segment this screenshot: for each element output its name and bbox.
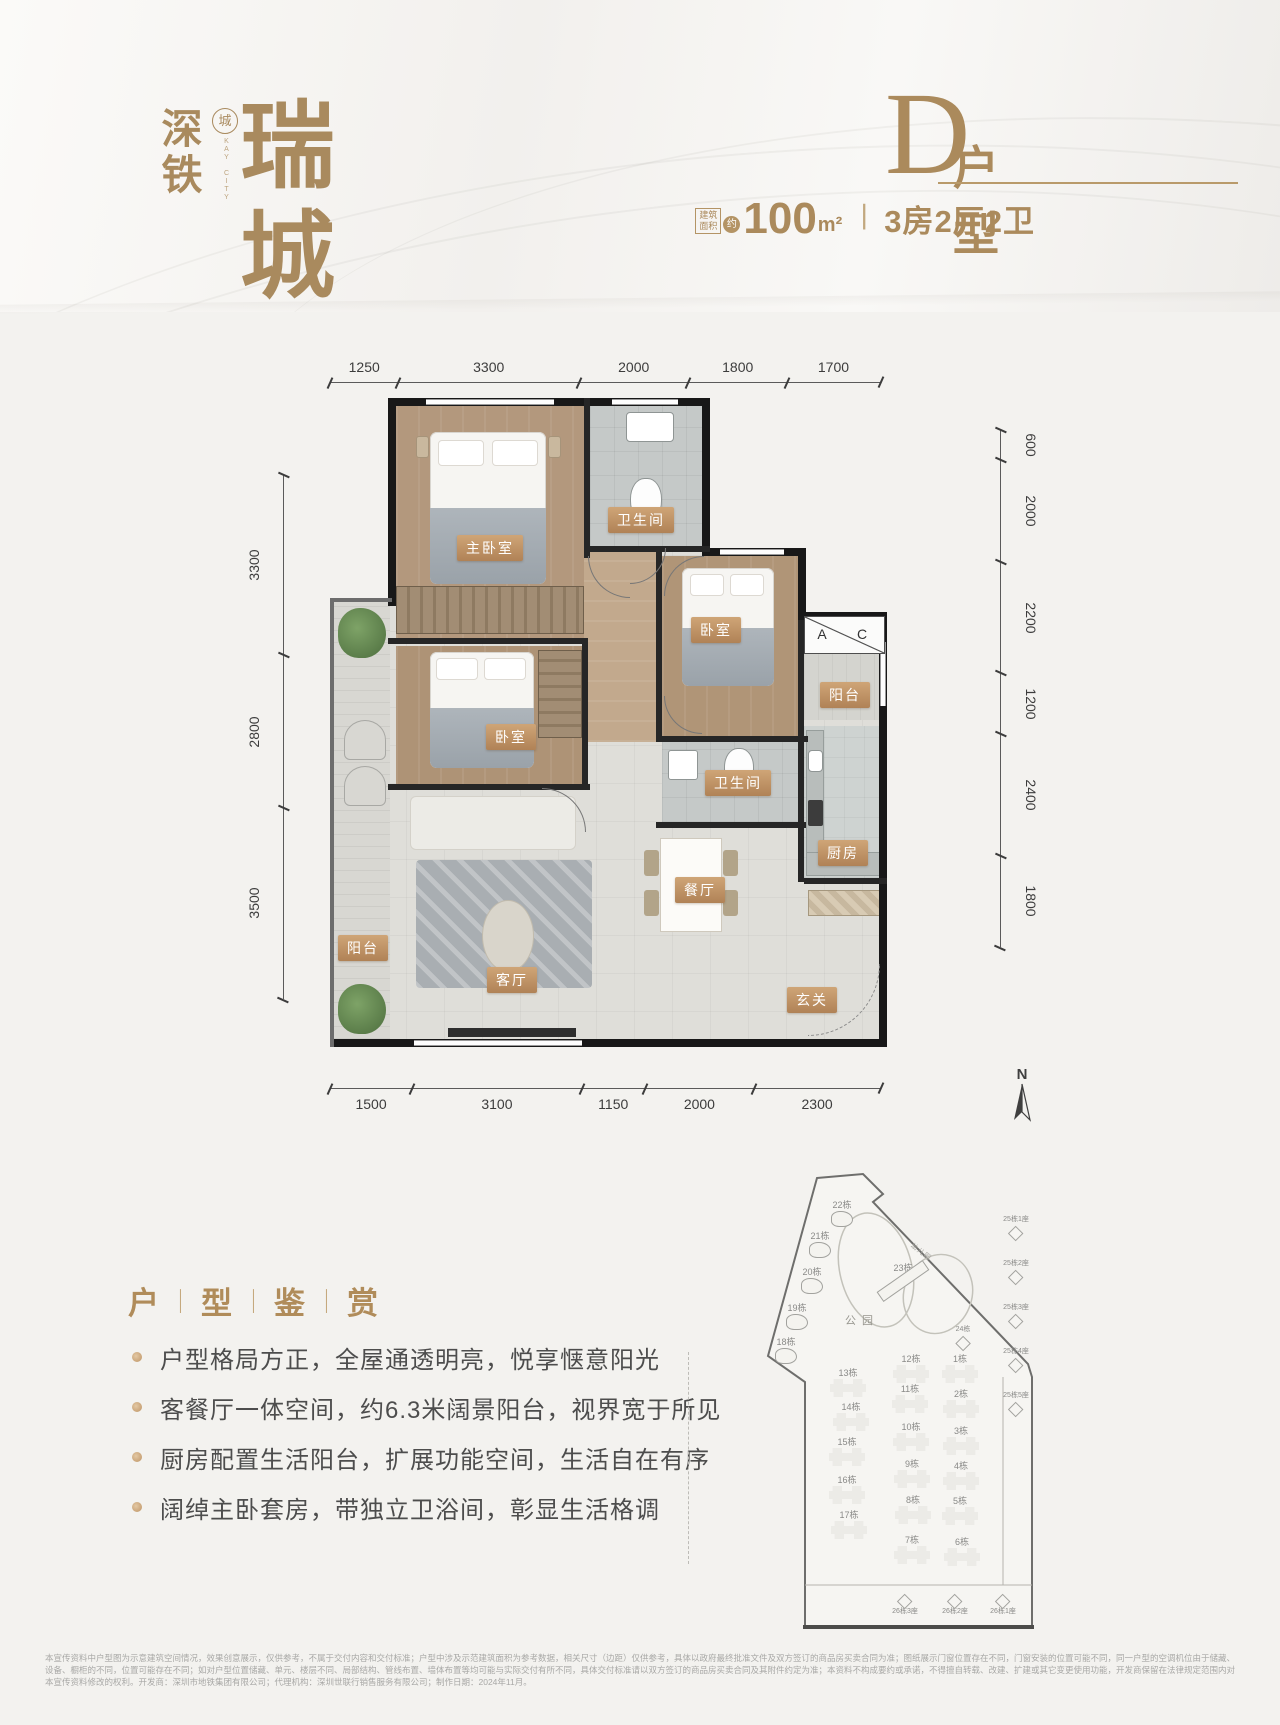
sitemap-tower: 15栋: [829, 1437, 865, 1466]
sitemap-tower: 8栋: [895, 1495, 931, 1524]
pillow: [730, 574, 764, 596]
sitemap-tower: 26栋2座: [942, 1593, 968, 1617]
sitemap-tower: 21栋: [809, 1231, 831, 1258]
park-label: 公园: [845, 1312, 879, 1328]
tower-label: 25栋3座: [1003, 1303, 1029, 1313]
sitemap-tower: 5栋: [942, 1496, 978, 1525]
window-bedroomR: [720, 549, 784, 555]
heading-separator: 丨: [320, 1282, 334, 1319]
pillow: [484, 658, 526, 680]
sitemap-tower: 11栋: [892, 1384, 928, 1413]
room-label: 餐厅: [675, 877, 725, 903]
plant: [338, 608, 386, 658]
sitemap-tower: 14栋: [833, 1402, 869, 1431]
dimension-row-top: 12503300200018001700: [330, 382, 880, 383]
tower-label: 10栋: [901, 1422, 920, 1432]
sitemap-tower: 18栋: [775, 1337, 797, 1364]
dimension-value: 1800: [688, 359, 787, 375]
area-value: 100: [743, 200, 816, 238]
logo-latin-subtext: KAY CITY: [218, 138, 230, 202]
sitemap-tower: 2栋: [943, 1389, 979, 1418]
wall-kitchen-bottom: [804, 878, 887, 884]
chair: [723, 850, 738, 876]
sitemap-tower: 26栋3座: [892, 1593, 918, 1617]
sitemap-tower: 7栋: [894, 1535, 930, 1564]
tower-footprint-icon: [894, 1470, 930, 1488]
balcony-rail-top: [330, 598, 392, 602]
tower-footprint-icon: [943, 1437, 979, 1455]
bullet-text: 阔绰主卧套房，带独立卫浴间，彰显生活格调: [160, 1490, 660, 1525]
dimension-value: 1200: [1023, 688, 1039, 719]
unit-spec-row: 建筑 面积 约 100 m² 丨 3房2厅2卫: [695, 196, 1035, 238]
nightstand: [548, 436, 561, 458]
lounge-chair: [344, 766, 386, 806]
sitemap-tower: 9栋: [894, 1459, 930, 1488]
pillow: [492, 440, 538, 466]
room-label: 主卧室: [457, 535, 523, 561]
room-label: 玄关: [787, 987, 837, 1013]
sitemap-tower: 20栋: [801, 1267, 823, 1294]
tower-footprint-icon: [943, 1400, 979, 1418]
heading-separator: 丨: [174, 1282, 188, 1319]
dimension-value: 3300: [246, 549, 262, 580]
plant: [338, 984, 386, 1034]
sitemap-tower: 16栋: [829, 1475, 865, 1504]
chair: [644, 890, 659, 916]
wall-bedroom2-right: [582, 644, 588, 790]
heading-char: 户: [128, 1278, 161, 1323]
tower-label: 21栋: [810, 1231, 829, 1241]
tower-footprint-icon: [831, 1521, 867, 1539]
ac-marker-letter: A: [817, 626, 826, 642]
window-bath1: [612, 399, 678, 405]
ac-marker-letter: C: [857, 626, 867, 642]
balcony-floor: [334, 602, 390, 1039]
dimension-value: 1700: [787, 359, 880, 375]
tower-footprint-icon: [1008, 1314, 1024, 1330]
tower-footprint-icon: [829, 1486, 865, 1504]
north-arrow: N: [1012, 1066, 1032, 1128]
tower-label: 19栋: [787, 1303, 806, 1313]
dimension-value: 2800: [246, 716, 262, 747]
area-unit: m²: [818, 214, 842, 237]
wall-master-bottom: [388, 638, 588, 644]
tv-cabinet: [448, 1028, 576, 1037]
tower-label: 18栋: [776, 1337, 795, 1347]
area-label-box: 建筑 面积: [695, 208, 721, 234]
tower-footprint-icon: [830, 1379, 866, 1397]
wall-bedroomR-left: [656, 550, 662, 742]
silk-curve: [180, 68, 1280, 312]
sitemap-tower: 25栋3座: [1003, 1303, 1029, 1327]
bullet-dot-icon: [132, 1502, 142, 1512]
tower-label: 8栋: [906, 1495, 920, 1505]
dimension-value: 2200: [1023, 602, 1039, 633]
dimension-value: 2400: [1023, 779, 1039, 810]
feature-bullet: 户型格局方正，全屋通透明亮，悦享惬意阳光: [132, 1332, 721, 1382]
tower-footprint-icon: [801, 1278, 823, 1294]
dimension-value: 3300: [398, 359, 579, 375]
room-label: 阳台: [820, 682, 870, 708]
north-arrow-icon: [1012, 1083, 1032, 1123]
tower-label: 3栋: [954, 1426, 968, 1436]
tower-label: 17栋: [839, 1510, 858, 1520]
window-living: [414, 1040, 582, 1046]
dimension-column-right: 60020002200120024001800: [1000, 430, 1001, 947]
tower-footprint-icon: [942, 1507, 978, 1525]
dimension-value: 600: [1023, 434, 1039, 457]
tower-label: 25栋5座: [1003, 1391, 1029, 1401]
dimension-row-bottom: 15003100115020002300: [330, 1088, 880, 1089]
feature-bullet: 阔绰主卧套房，带独立卫浴间，彰显生活格调: [132, 1482, 721, 1532]
nightstand: [416, 436, 429, 458]
feature-bullet: 厨房配置生活阳台，扩展功能空间，生活自在有序: [132, 1432, 721, 1482]
tower-footprint-icon: [894, 1546, 930, 1564]
wall-right-step2: [798, 548, 806, 620]
feature-bullet: 客餐厅一体空间，约6.3米阔景阳台，视界宽于所见: [132, 1382, 721, 1432]
tower-footprint-icon: [895, 1506, 931, 1524]
bullet-text: 户型格局方正，全屋通透明亮，悦享惬意阳光: [160, 1340, 660, 1375]
tower-label: 25栋2座: [1003, 1259, 1029, 1269]
dimension-value: 1500: [330, 1096, 412, 1112]
pillow: [436, 658, 478, 680]
floor-plan: 主卧室卫生间卧室卧室卫生间阳台厨房餐厅客厅阳台玄关AC: [330, 398, 890, 1050]
dimension-value: 2000: [1023, 496, 1039, 527]
room-label: 卧室: [691, 617, 741, 643]
approx-circle-icon: 约: [723, 216, 740, 233]
tower-label: 25栋1座: [1003, 1215, 1029, 1225]
bullet-dot-icon: [132, 1402, 142, 1412]
sitemap-tower: 25栋1座: [1003, 1215, 1029, 1239]
bullet-text: 客餐厅一体空间，约6.3米阔景阳台，视界宽于所见: [160, 1390, 721, 1425]
tower-label: 22栋: [832, 1200, 851, 1210]
tower-footprint-icon: [942, 1365, 978, 1383]
tower-footprint-icon: [1008, 1270, 1024, 1286]
sitemap-tower: 12栋: [893, 1354, 929, 1383]
lounge-chair: [344, 720, 386, 760]
chair: [644, 850, 659, 876]
sitemap-tower: 6栋: [944, 1537, 980, 1566]
tower-label: 2栋: [954, 1389, 968, 1399]
dimension-value: 1150: [582, 1096, 645, 1112]
dimension-value: 1800: [1023, 886, 1039, 917]
tower-label: 9栋: [905, 1459, 919, 1469]
room-label: 卫生间: [608, 507, 674, 533]
bath1-sink: [626, 412, 674, 442]
features-bullet-list: 户型格局方正，全屋通透明亮，悦享惬意阳光客餐厅一体空间，约6.3米阔景阳台，视界…: [132, 1332, 721, 1532]
wall-right-step1: [702, 398, 710, 556]
tower-label: 6栋: [955, 1537, 969, 1547]
tower-label: 16栋: [837, 1475, 856, 1485]
tower-label: 1栋: [953, 1354, 967, 1364]
sitemap-tower: 25栋2座: [1003, 1259, 1029, 1283]
room-count-spec: 3房2厅2卫: [884, 205, 1035, 238]
tower-label: 11栋: [901, 1384, 919, 1394]
bullet-dot-icon: [132, 1352, 142, 1362]
sitemap-tower: 10栋: [893, 1422, 929, 1451]
wall-kitchen-left: [798, 620, 804, 882]
bullet-dot-icon: [132, 1452, 142, 1462]
wall-left: [388, 398, 396, 606]
tower-footprint-icon: [809, 1242, 831, 1258]
sitemap-tower: 13栋: [830, 1368, 866, 1397]
logo-stacked-chars: 深 铁: [160, 106, 204, 198]
site-map: 22栋21栋20栋19栋18栋23栋24栋13栋14栋15栋16栋17栋12栋1…: [760, 1172, 1052, 1642]
heading-separator: 丨: [247, 1282, 261, 1319]
tower-footprint-icon: [893, 1433, 929, 1451]
dimension-value: 2000: [645, 1096, 754, 1112]
sitemap-tower: 19栋: [786, 1303, 808, 1330]
tower-footprint-icon: [892, 1395, 928, 1413]
tower-footprint-icon: [833, 1413, 869, 1431]
brochure-page: 深 铁 城 KAY CITY 瑞城 D 户型 建筑 面积 约 100 m² 丨 …: [0, 0, 1280, 1725]
north-label: N: [1012, 1066, 1032, 1083]
tower-footprint-icon: [893, 1365, 929, 1383]
sitemap-tower: 25栋5座: [1003, 1391, 1029, 1415]
tower-label: 15栋: [837, 1437, 856, 1447]
dimension-column-left: 330028003500: [283, 475, 284, 999]
heading-char: 赏: [347, 1278, 380, 1323]
tower-label: 20栋: [802, 1267, 821, 1277]
tower-footprint-icon: [1008, 1402, 1024, 1418]
tower-footprint-icon: [943, 1472, 979, 1490]
bullet-text: 厨房配置生活阳台，扩展功能空间，生活自在有序: [160, 1440, 710, 1475]
stove: [808, 800, 823, 826]
dimension-value: 3500: [246, 888, 262, 919]
balcony-rail-left: [330, 598, 334, 1047]
heading-char: 型: [201, 1278, 234, 1323]
kitchen-sink: [808, 750, 823, 772]
wall-bedroom2-bottom: [388, 784, 590, 790]
room-label: 卫生间: [705, 770, 771, 796]
dimension-value: 2300: [754, 1096, 880, 1112]
tower-label: 5栋: [953, 1496, 967, 1506]
title-underline: [938, 182, 1238, 184]
legal-disclaimer-text: 本宣传资料中户型图为示意建筑空间情况，效果创意展示，仅供参考，不属于交付内容和交…: [45, 1652, 1235, 1688]
tower-footprint-icon: [955, 1336, 971, 1352]
foyer-cabinet: [808, 890, 880, 916]
washer: [668, 750, 698, 780]
room-label: 厨房: [818, 840, 868, 866]
tower-footprint-icon: [786, 1314, 808, 1330]
coffee-table: [482, 900, 534, 972]
tower-label: 25栋4座: [1003, 1347, 1029, 1357]
tower-footprint-icon: [831, 1211, 853, 1227]
room-label: 客厅: [487, 967, 537, 993]
sitemap-tower: 24栋: [956, 1325, 971, 1349]
tower-label: 4栋: [954, 1461, 968, 1471]
tower-label: 14栋: [841, 1402, 860, 1412]
tower-footprint-icon: [1008, 1226, 1024, 1242]
tower-footprint-icon: [829, 1448, 865, 1466]
property-dashed-line: [688, 1352, 689, 1564]
chair: [723, 890, 738, 916]
sitemap-tower: 17栋: [831, 1510, 867, 1539]
features-heading: 户丨型丨鉴丨赏: [128, 1278, 380, 1323]
sitemap-tower: 22栋: [831, 1200, 853, 1227]
wall-bath2-top: [656, 736, 808, 742]
sitemap-tower: 25栋4座: [1003, 1347, 1029, 1371]
tower-label: 24栋: [956, 1325, 971, 1335]
logo-seal-icon: 城: [212, 108, 238, 134]
sitemap-tower: 1栋: [942, 1354, 978, 1383]
sitemap-tower: 4栋: [943, 1461, 979, 1490]
bedroom2-wardrobe: [538, 650, 582, 738]
pillow: [438, 440, 484, 466]
wall-bath2-bottom: [656, 822, 806, 828]
room-label: 卧室: [486, 724, 536, 750]
spec-separator: 丨: [850, 196, 878, 236]
logo-main-wordmark: 瑞城: [240, 92, 339, 312]
dimension-value: 2000: [579, 359, 688, 375]
heading-char: 鉴: [274, 1278, 307, 1323]
tower-label: 7栋: [905, 1535, 919, 1545]
ac-platform-box: [804, 616, 885, 654]
sitemap-tower: 26栋1座: [990, 1593, 1016, 1617]
unit-type-title: D 户型: [885, 84, 970, 184]
tower-label: 13栋: [838, 1368, 857, 1378]
window-master: [426, 399, 554, 405]
tower-footprint-icon: [775, 1348, 797, 1364]
tower-footprint-icon: [1008, 1358, 1024, 1374]
sitemap-tower: 23栋: [875, 1263, 931, 1287]
master-wardrobe: [396, 586, 584, 634]
dimension-value: 1250: [330, 359, 398, 375]
wall-bath1-left: [584, 398, 590, 558]
dimension-value: 3100: [412, 1096, 582, 1112]
tower-label: 12栋: [901, 1354, 920, 1364]
sitemap-tower: 3栋: [943, 1426, 979, 1455]
tower-footprint-icon: [944, 1548, 980, 1566]
room-label: 阳台: [338, 935, 388, 961]
